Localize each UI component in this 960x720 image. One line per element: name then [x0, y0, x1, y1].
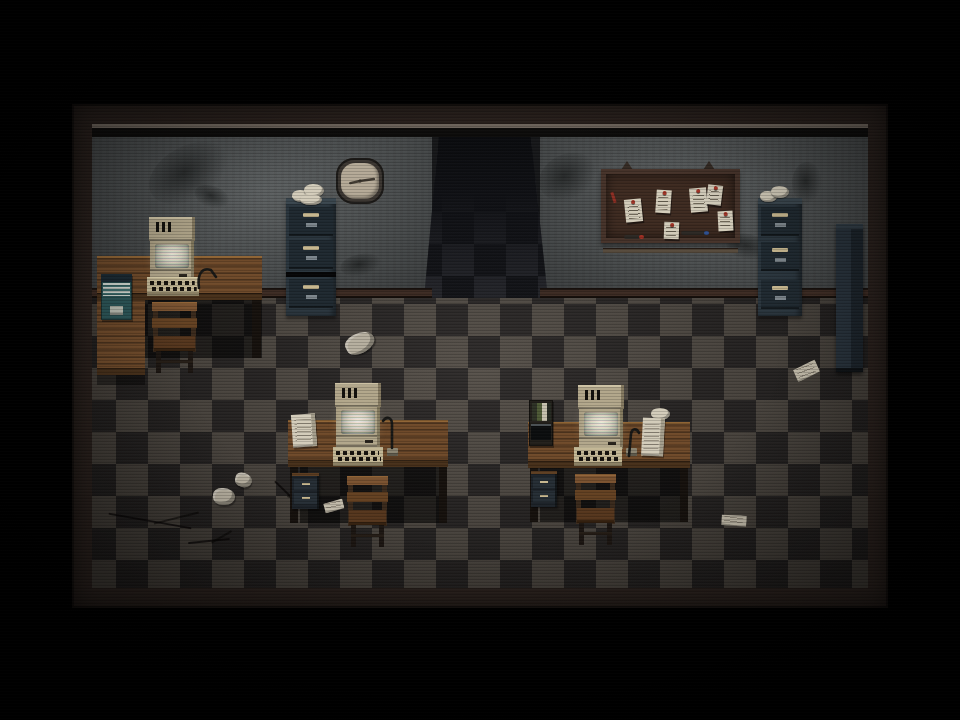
- board-marker: [681, 231, 708, 235]
- card-file-index-icon: [103, 283, 130, 296]
- monitor-bezel: [336, 407, 380, 437]
- bookshelf-cubby: [531, 424, 551, 440]
- monitor-bezel: [150, 241, 194, 271]
- crumpled-paper: [300, 194, 322, 205]
- computer-case: [335, 383, 381, 407]
- drawer-unit-right[interactable]: [531, 471, 557, 507]
- cabinet-drawer[interactable]: [761, 280, 799, 309]
- drawer-handle: [303, 285, 319, 289]
- computer-case: [578, 385, 624, 409]
- cabinet-drawer[interactable]: [289, 279, 333, 308]
- crt-screen[interactable]: [155, 244, 189, 268]
- marker-layer: [606, 169, 745, 243]
- desk-leg: [680, 468, 688, 522]
- keyboard-left[interactable]: [147, 277, 199, 296]
- drawer-handle: [772, 248, 788, 252]
- drawer-label: [775, 223, 786, 227]
- game-viewport: [0, 0, 960, 720]
- desk-bookshelf[interactable]: [529, 400, 553, 446]
- computer-left[interactable]: [149, 217, 195, 281]
- drawer-handle: [772, 213, 788, 217]
- computer-base: [336, 437, 380, 447]
- bulletin-board[interactable]: [601, 161, 740, 249]
- chair-right: [575, 474, 616, 546]
- filing-cabinet-left[interactable]: [286, 198, 336, 316]
- drawer-gap: [286, 272, 336, 277]
- drawer-handle: [303, 213, 319, 217]
- hallway-opening[interactable]: [424, 136, 548, 298]
- drawer-label: [775, 258, 786, 262]
- drawer-label: [306, 295, 317, 299]
- paper-stack[interactable]: [641, 417, 665, 456]
- card-file-label: [110, 306, 123, 315]
- desk-leg: [439, 467, 447, 523]
- ceiling-shadow: [92, 128, 868, 137]
- cabinet-drawer[interactable]: [289, 240, 333, 269]
- cabinet-drawer[interactable]: [761, 207, 799, 236]
- paper-pile[interactable]: [292, 184, 330, 206]
- room-frame: [72, 104, 888, 608]
- card-file-lid: [101, 274, 132, 282]
- monitor-bezel: [579, 409, 623, 439]
- wall-clock: [336, 158, 384, 204]
- clock-hands: [341, 162, 379, 200]
- computer-middle[interactable]: [335, 383, 381, 447]
- keyboard-middle[interactable]: [333, 447, 383, 466]
- drawer-label: [775, 296, 786, 300]
- vents-icon: [342, 388, 359, 398]
- drawer-unit-middle[interactable]: [292, 473, 319, 509]
- crt-screen[interactable]: [341, 410, 375, 434]
- baseboard-right: [540, 288, 868, 298]
- drawer-handle: [772, 286, 788, 290]
- desk-right: [528, 422, 690, 468]
- drawer-label: [306, 223, 317, 227]
- desk-lamp-right[interactable]: [622, 424, 642, 458]
- crumpled-paper: [771, 186, 789, 198]
- computer-case: [149, 217, 195, 241]
- filing-cabinet-right[interactable]: [758, 198, 802, 316]
- board-tray: [603, 248, 738, 253]
- desk-lamp-left[interactable]: [193, 260, 219, 292]
- paper-pile[interactable]: [760, 186, 794, 206]
- desk-lamp-middle[interactable]: [381, 412, 401, 450]
- computer-right[interactable]: [578, 385, 624, 449]
- cabinet-drawer[interactable]: [761, 242, 799, 271]
- desk-left: [97, 256, 262, 375]
- chair-middle: [347, 476, 388, 548]
- room-interior: [92, 124, 868, 588]
- vents-icon: [156, 222, 173, 232]
- drawer-handle: [303, 246, 319, 250]
- cabinet-drawer[interactable]: [289, 207, 333, 236]
- keyboard-right[interactable]: [574, 447, 622, 466]
- drawer-label: [306, 256, 317, 260]
- book-spine: [547, 403, 551, 421]
- tall-locker[interactable]: [836, 224, 863, 372]
- vents-icon: [585, 390, 602, 400]
- desk-shadow: [97, 375, 145, 385]
- desk-middle: [288, 420, 448, 467]
- paper-stack[interactable]: [291, 413, 317, 448]
- board-marker: [624, 235, 643, 239]
- card-file-box[interactable]: [101, 274, 132, 320]
- crt-screen[interactable]: [584, 412, 618, 436]
